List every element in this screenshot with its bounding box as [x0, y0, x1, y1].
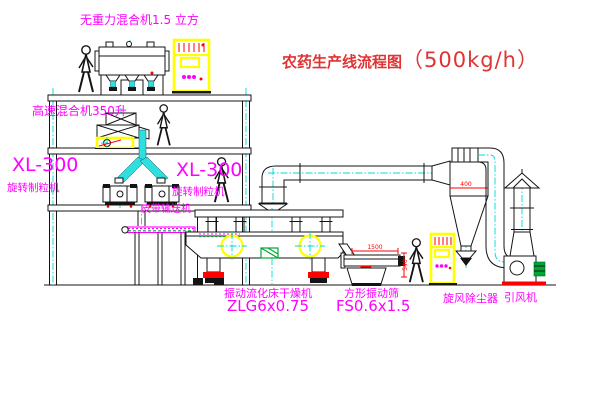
label-fan: 引风机 [504, 292, 537, 303]
label-granulator-right-model: XL-300 [176, 161, 242, 180]
label-dryer-model: ZLG6x0.75 [227, 299, 309, 314]
chimney-stack [505, 169, 539, 258]
label-granulator-right-name: 旋转制粒机 [172, 187, 225, 198]
fluid-bed-dryer [186, 208, 355, 284]
control-cabinet-ground [429, 234, 457, 286]
diagram-title-capacity: （500kg/h） [402, 48, 539, 72]
label-belt-conveyor: 皮带输送机 [141, 205, 191, 215]
label-weightless-mixer: 无重力混合机1.5 立方 [80, 14, 199, 26]
worker-second-floor [158, 105, 170, 146]
diagram-title: 农药生产线流程图（500kg/h） [282, 50, 539, 71]
label-screen-model: FS0.6x1.5 [336, 299, 410, 314]
cad-flow-diagram: 1500 540 400 [0, 0, 600, 403]
label-high-speed-mixer: 高速混合机350升 [32, 105, 127, 117]
label-granulator-left-name: 旋转制粒机 [7, 183, 60, 194]
worker-top-floor [79, 46, 93, 92]
dimension-screen-length: 1500 [352, 244, 398, 254]
exhaust-duct [259, 163, 452, 212]
belt-conveyor [122, 227, 195, 285]
granulator-left [103, 176, 137, 210]
control-cabinet-top [172, 40, 211, 94]
weightless-mixer [95, 40, 169, 95]
label-granulator-left-model: XL-300 [12, 156, 78, 175]
vibrating-screen [341, 253, 405, 286]
dim-text-400: 400 [460, 181, 472, 188]
diagram-title-text: 农药生产线流程图 [282, 53, 402, 71]
dim-text-540: 540 [402, 259, 409, 271]
label-cyclone: 旋风除尘器 [443, 293, 498, 304]
dim-text-1500: 1500 [367, 244, 382, 251]
worker-ground [410, 239, 423, 282]
induced-draft-fan [502, 256, 546, 285]
